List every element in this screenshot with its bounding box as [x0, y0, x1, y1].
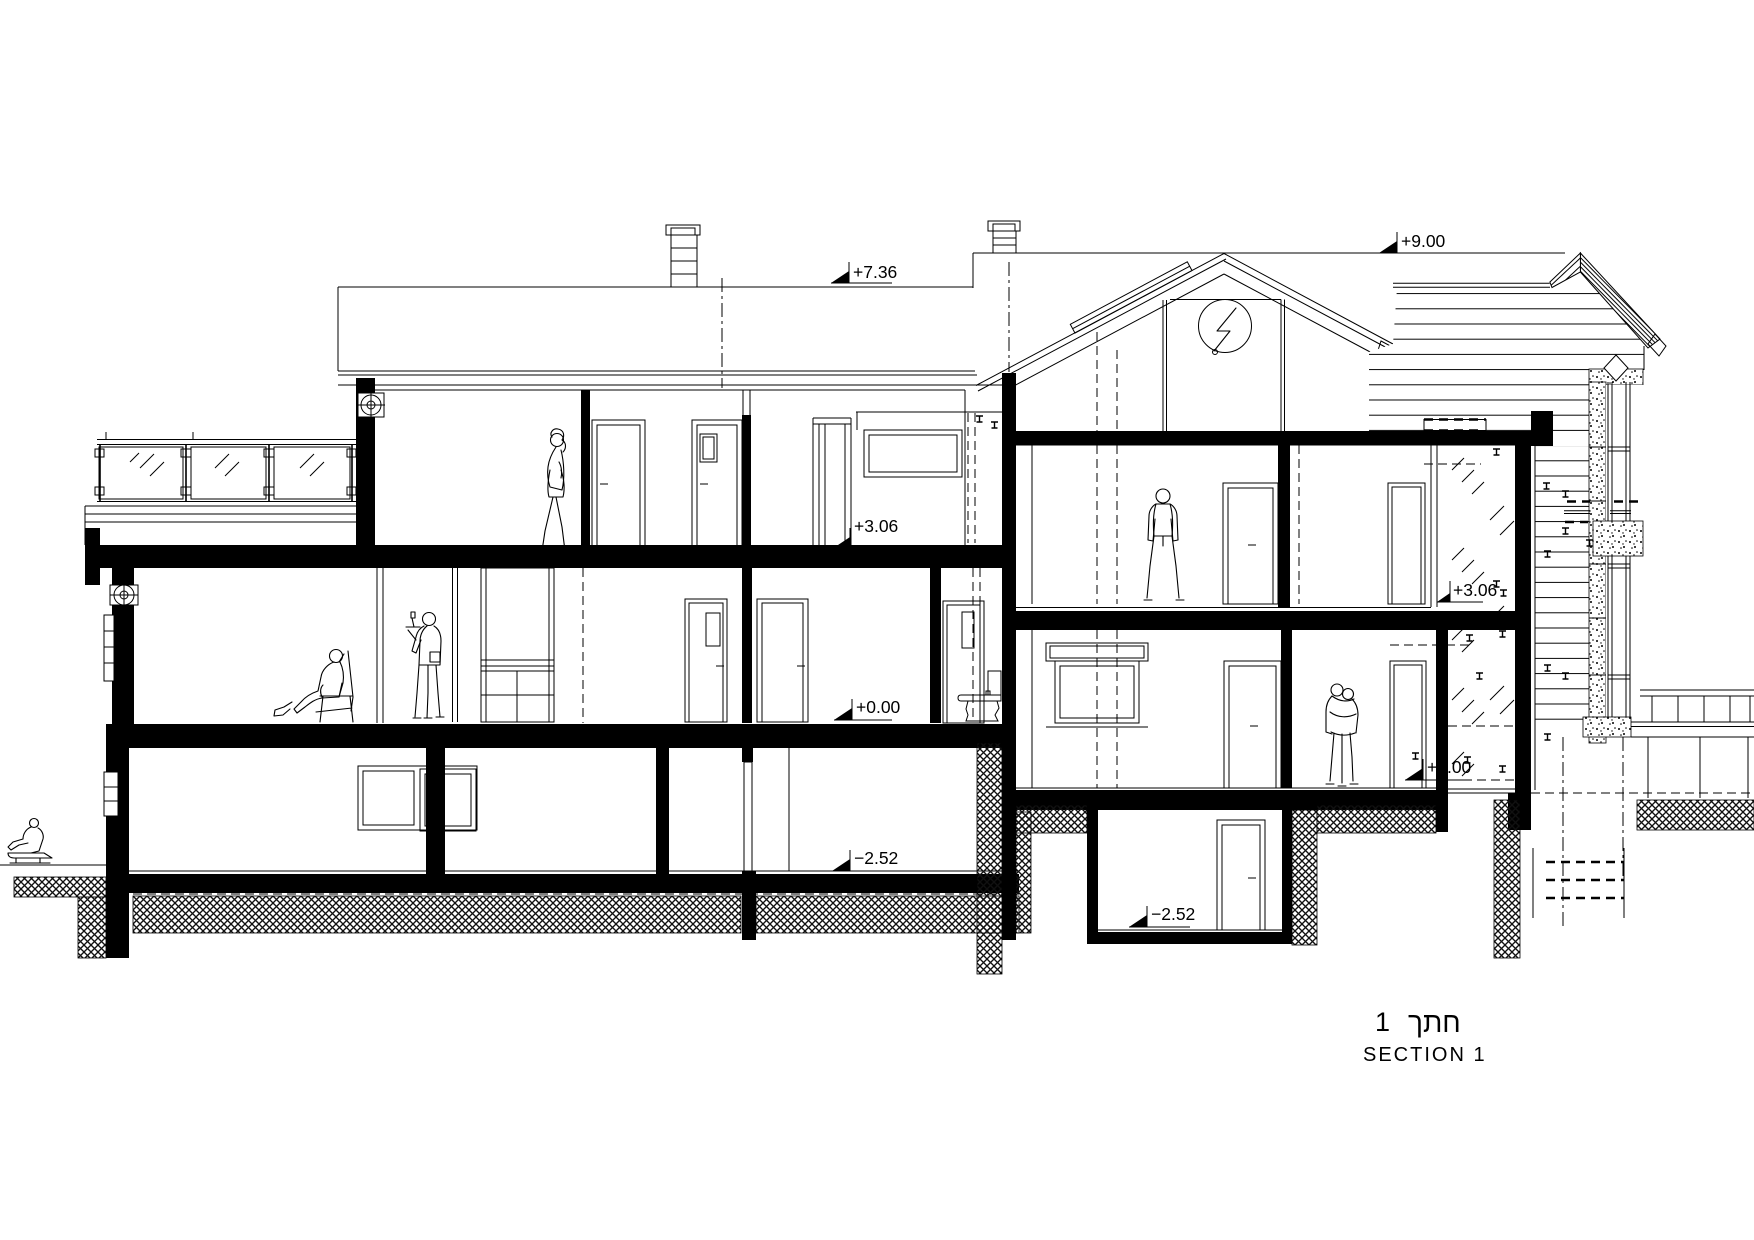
- svg-text:+3.06: +3.06: [1453, 580, 1497, 600]
- svg-text:−2.52: −2.52: [1151, 904, 1195, 924]
- svg-text:+7.36: +7.36: [853, 262, 897, 282]
- svg-text:+3.06: +3.06: [854, 516, 898, 536]
- svg-text:+0.00: +0.00: [1427, 757, 1472, 777]
- svg-text:+0.00: +0.00: [856, 697, 901, 717]
- svg-text:SECTION 1: SECTION 1: [1363, 1044, 1487, 1066]
- svg-text:חתך: חתך: [1408, 1007, 1461, 1038]
- svg-text:1: 1: [1375, 1007, 1390, 1037]
- svg-text:+9.00: +9.00: [1401, 231, 1446, 251]
- svg-text:−2.52: −2.52: [854, 848, 898, 868]
